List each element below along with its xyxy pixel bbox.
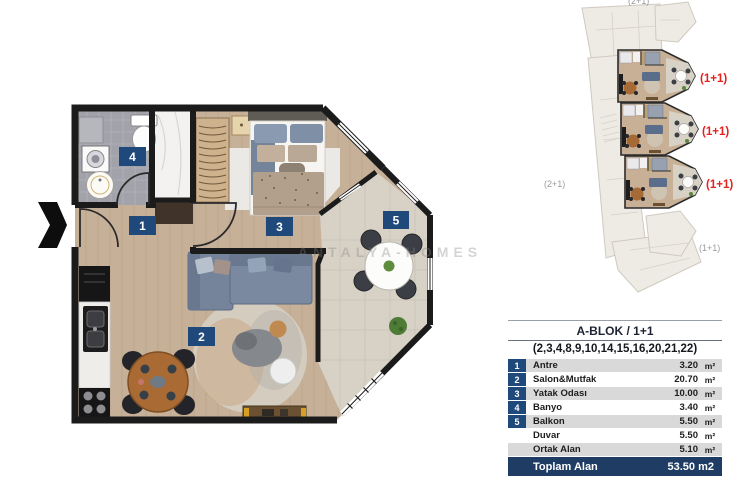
key-plan: (1+1) (1+1) (1+1) (2+1) (2+1) (1+1): [544, 0, 733, 292]
wardrobe: [196, 118, 229, 202]
row-room-name: Yatak Odası: [526, 388, 656, 399]
key-plan-unit-3: [625, 156, 702, 208]
table-row: Duvar5.50m²: [508, 429, 722, 442]
unit-type-label-bottom: (1+1): [699, 243, 720, 253]
row-number-badge: 5: [508, 415, 526, 428]
cooktop: [79, 388, 110, 418]
row-area-value: 5.10: [656, 444, 698, 455]
row-room-name: Ortak Alan: [526, 444, 656, 455]
row-room-name: Duvar: [526, 430, 656, 441]
row-number-badge: [508, 429, 526, 442]
unit-type-label-3: (1+1): [706, 179, 733, 191]
entrance-arrow-icon: [38, 202, 67, 248]
row-room-name: Salon&Mutfak: [526, 374, 656, 385]
row-area-unit: m²: [698, 361, 722, 371]
area-table-total-row: Toplam Alan 53.50 m2: [508, 457, 722, 476]
room-badge-3: 3: [266, 217, 293, 236]
dining-set: [122, 349, 195, 415]
svg-text:2: 2: [198, 330, 205, 344]
row-number-badge: 4: [508, 401, 526, 414]
row-area-unit: m²: [698, 417, 722, 427]
marble-closet: [154, 108, 193, 200]
table-row: 2Salon&Mutfak20.70m²: [508, 373, 722, 386]
row-number-badge: 1: [508, 359, 526, 372]
room-badge-5: 5: [383, 211, 409, 229]
unit-type-label-2: (1+1): [702, 126, 729, 138]
row-area-unit: m²: [698, 431, 722, 441]
svg-text:4: 4: [129, 150, 136, 164]
row-area-value: 3.20: [656, 360, 698, 371]
row-area-value: 3.40: [656, 402, 698, 413]
area-table: A-BLOK / 1+1 (2,3,4,8,9,10,14,15,16,20,2…: [508, 320, 722, 476]
table-row: 1Antre3.20m²: [508, 359, 722, 372]
row-number-badge: 3: [508, 387, 526, 400]
key-plan-unit-1: [618, 50, 695, 102]
unit-type-label-top: (2+1): [628, 0, 649, 6]
row-number-badge: [508, 443, 526, 456]
area-table-title: A-BLOK / 1+1: [508, 320, 722, 341]
floor-plan-page: ANTALYA-HOMES 1 2 3 4 5: [0, 0, 750, 500]
row-area-value: 5.50: [656, 416, 698, 427]
room-badge-1: 1: [129, 216, 156, 235]
bed: [248, 111, 327, 215]
row-room-name: Balkon: [526, 416, 656, 427]
shower-unit: [79, 117, 103, 143]
table-row: Ortak Alan5.10m²: [508, 443, 722, 456]
row-room-name: Antre: [526, 360, 656, 371]
area-table-rows: 1Antre3.20m²2Salon&Mutfak20.70m²3Yatak O…: [508, 359, 722, 456]
table-row: 3Yatak Odası10.00m²: [508, 387, 722, 400]
watermark-text: ANTALYA-HOMES: [298, 244, 482, 260]
area-table-subtitle: (2,3,4,8,9,10,14,15,16,20,21,22): [508, 341, 722, 359]
room-badge-2: 2: [188, 327, 215, 346]
key-plan-unit-2: [621, 103, 698, 155]
svg-text:3: 3: [276, 220, 283, 234]
unit-type-label-1: (1+1): [700, 73, 727, 85]
dark-niche: [155, 200, 193, 224]
main-floor-plan: ANTALYA-HOMES 1 2 3 4 5: [38, 100, 482, 430]
row-area-value: 20.70: [656, 374, 698, 385]
kitchen-counter: [79, 266, 110, 418]
svg-text:5: 5: [393, 214, 400, 228]
row-area-unit: m²: [698, 445, 722, 455]
table-row: 4Banyo3.40m²: [508, 401, 722, 414]
row-number-badge: 2: [508, 373, 526, 386]
balcony-plant: [389, 317, 407, 335]
key-plan-red-labels: (1+1) (1+1) (1+1): [700, 73, 733, 191]
room-badge-4: 4: [119, 147, 146, 166]
unit-type-label-left: (2+1): [544, 179, 565, 189]
row-room-name: Banyo: [526, 402, 656, 413]
sofa: [188, 252, 312, 310]
total-label: Toplam Alan: [508, 461, 668, 473]
row-area-unit: m²: [698, 389, 722, 399]
row-area-value: 5.50: [656, 430, 698, 441]
row-area-unit: m²: [698, 375, 722, 385]
svg-text:1: 1: [139, 219, 146, 233]
row-area-unit: m²: [698, 403, 722, 413]
table-row: 5Balkon5.50m²: [508, 415, 722, 428]
row-area-value: 10.00: [656, 388, 698, 399]
total-value: 53.50 m2: [668, 461, 722, 473]
